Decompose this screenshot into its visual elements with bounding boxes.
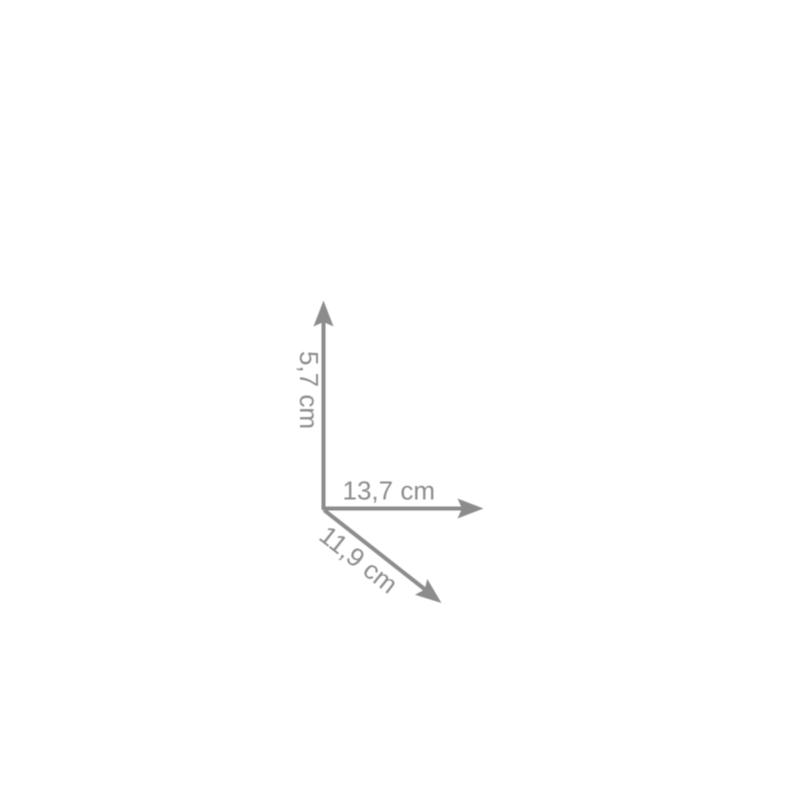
svg-text:5,7 cm: 5,7 cm	[294, 351, 324, 429]
svg-text:13,7 cm: 13,7 cm	[343, 476, 436, 506]
